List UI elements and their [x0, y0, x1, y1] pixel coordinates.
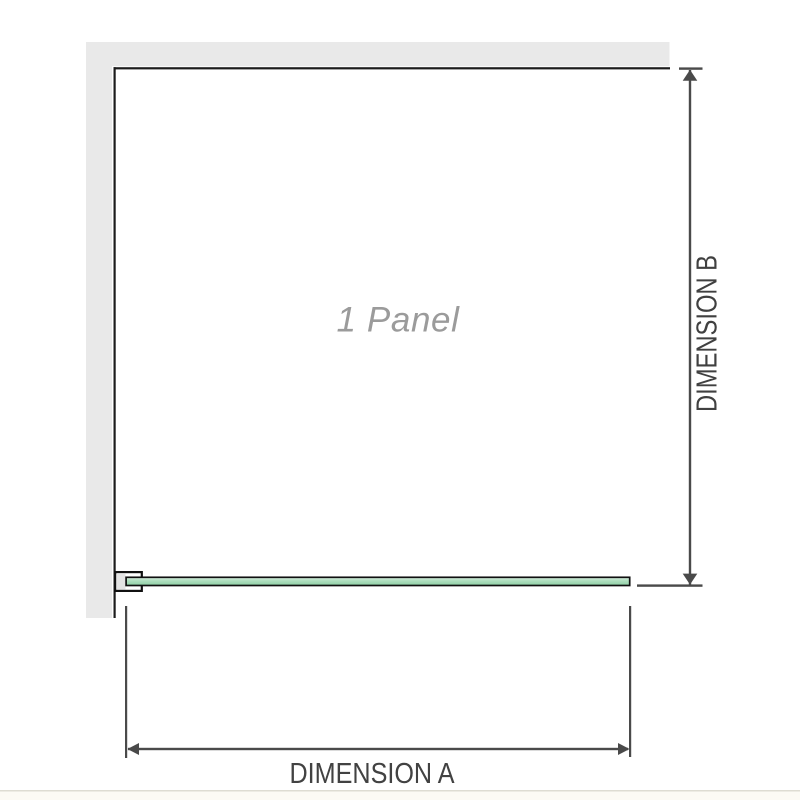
- svg-text:DIMENSION B: DIMENSION B: [692, 255, 724, 412]
- svg-text:1 Panel: 1 Panel: [337, 301, 461, 340]
- svg-text:DIMENSION A: DIMENSION A: [290, 758, 456, 790]
